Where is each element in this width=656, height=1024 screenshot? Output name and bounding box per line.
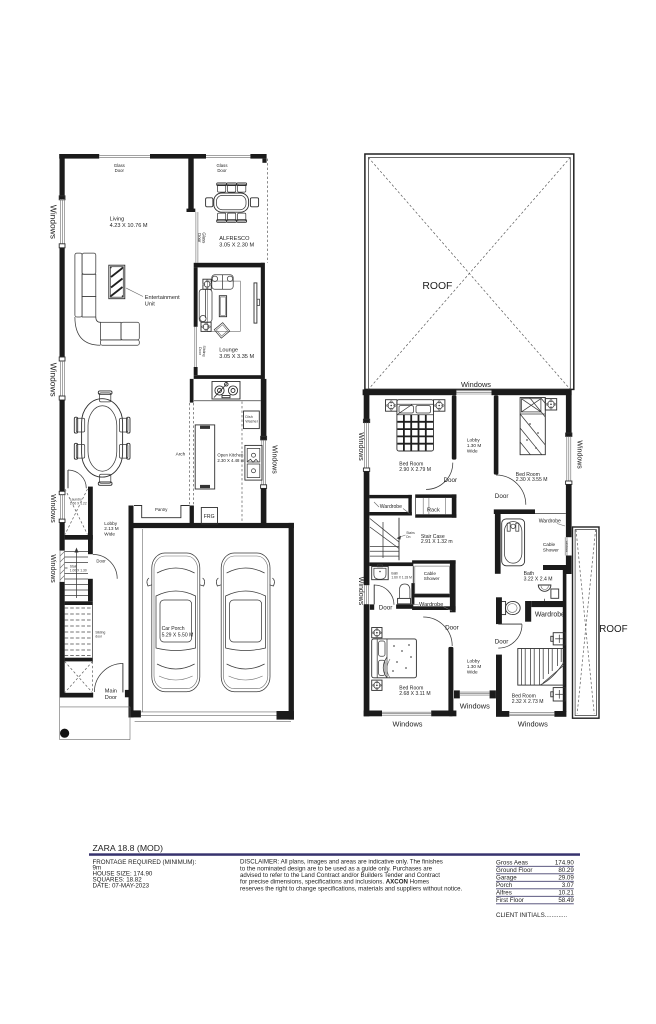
svg-text:Windows: Windows — [518, 719, 548, 728]
svg-text:2.30 X 3.55 M: 2.30 X 3.55 M — [516, 477, 548, 483]
svg-text:3.05 X 2.30 M: 3.05 X 2.30 M — [219, 243, 254, 249]
svg-text:Windows: Windows — [357, 432, 364, 461]
svg-text:ALFRESCO: ALFRESCO — [219, 236, 250, 242]
svg-text:3.07: 3.07 — [562, 882, 575, 889]
svg-text:Door: Door — [379, 605, 393, 612]
svg-text:Alfres: Alfres — [496, 889, 512, 896]
svg-text:2.30 X 4.48 m: 2.30 X 4.48 m — [217, 458, 244, 463]
svg-text:ZARA 18.8 (MOD): ZARA 18.8 (MOD) — [93, 843, 164, 853]
svg-text:2.68 X 3.11 M: 2.68 X 3.11 M — [399, 691, 430, 697]
svg-text:door: door — [95, 634, 103, 638]
svg-text:80.29: 80.29 — [558, 867, 574, 874]
svg-text:Wardrobe: Wardrobe — [380, 504, 402, 510]
svg-text:FRG: FRG — [204, 514, 215, 520]
svg-text:Shower: Shower — [424, 576, 440, 581]
svg-text:reserves the right to change s: reserves the right to change specificati… — [240, 885, 462, 892]
svg-text:Door: Door — [96, 558, 106, 563]
svg-text:Lounge: Lounge — [219, 347, 238, 353]
svg-text:Windows: Windows — [576, 440, 583, 469]
svg-text:Arch: Arch — [176, 451, 186, 456]
svg-text:Windows: Windows — [271, 445, 278, 474]
svg-text:1.60 X 1.22: 1.60 X 1.22 — [70, 501, 87, 505]
svg-text:FRONTAGE REQUIRED (MINIMUM):: FRONTAGE REQUIRED (MINIMUM): — [93, 859, 197, 866]
svg-text:Car Porch: Car Porch — [162, 626, 185, 632]
svg-text:Windows: Windows — [357, 577, 364, 606]
svg-text:Windows: Windows — [49, 554, 56, 583]
svg-text:DATE: 07-MAY-2023: DATE: 07-MAY-2023 — [93, 882, 150, 889]
svg-text:Unit: Unit — [145, 301, 155, 307]
svg-text:Entertainment: Entertainment — [145, 295, 180, 301]
svg-text:Washer: Washer — [245, 419, 258, 423]
svg-text:174.90: 174.90 — [555, 859, 574, 866]
svg-text:Wide: Wide — [104, 532, 115, 537]
svg-text:Door: Door — [217, 168, 227, 173]
svg-text:Windows: Windows — [460, 701, 490, 710]
svg-text:2.91 X 1.32 m: 2.91 X 1.32 m — [421, 539, 453, 545]
svg-text:1.00 X 1.30: 1.00 X 1.30 — [70, 569, 87, 573]
svg-text:SlidingDoor: SlidingDoor — [198, 345, 206, 356]
svg-text:Windows: Windows — [49, 494, 56, 523]
svg-text:Wardrobe: Wardrobe — [419, 602, 443, 608]
svg-text:Main: Main — [105, 689, 117, 695]
svg-text:GlassDoor: GlassDoor — [197, 232, 207, 243]
svg-text:4.23 X 10.76 M: 4.23 X 10.76 M — [110, 223, 148, 229]
svg-text:Pantry: Pantry — [155, 507, 168, 512]
svg-text:Cable: Cable — [543, 542, 556, 547]
svg-text:Dish: Dish — [245, 415, 252, 419]
svg-text:Lobby: Lobby — [467, 659, 480, 664]
svg-text:Lobby: Lobby — [467, 438, 480, 443]
svg-text:First Floor: First Floor — [496, 897, 524, 904]
svg-text:Dn: Dn — [406, 535, 410, 539]
svg-text:Wardrobe: Wardrobe — [535, 612, 565, 619]
svg-text:ROOF: ROOF — [422, 281, 452, 292]
svg-text:Rack: Rack — [427, 507, 440, 513]
svg-text:Porch: Porch — [496, 882, 513, 889]
svg-text:Windows: Windows — [49, 363, 59, 397]
svg-text:Cable: Cable — [424, 571, 437, 576]
svg-text:windows: windows — [565, 541, 569, 553]
svg-text:29.09: 29.09 — [558, 874, 574, 881]
svg-text:CLIENT INITIALS.............: CLIENT INITIALS............. — [496, 912, 567, 919]
svg-text:Ground Floor: Ground Floor — [496, 867, 532, 874]
svg-text:Wide: Wide — [467, 449, 478, 454]
svg-text:5.29 X 5.50 M: 5.29 X 5.50 M — [162, 633, 194, 639]
svg-text:Wide: Wide — [467, 669, 478, 674]
svg-text:Windows: Windows — [461, 380, 491, 389]
svg-text:Garage: Garage — [496, 874, 517, 881]
svg-text:58.49: 58.49 — [558, 897, 574, 904]
svg-text:Lobby: Lobby — [104, 521, 117, 526]
svg-text:Shower: Shower — [543, 547, 559, 552]
svg-text:Door: Door — [495, 493, 509, 500]
svg-text:1.30 M: 1.30 M — [467, 664, 481, 669]
svg-text:Door: Door — [105, 695, 117, 701]
svg-text:2.90 X 2.79 M: 2.90 X 2.79 M — [399, 467, 431, 473]
svg-text:Door: Door — [495, 638, 509, 645]
svg-text:Door: Door — [444, 477, 458, 484]
svg-text:3.05 X 3.35 M: 3.05 X 3.35 M — [219, 354, 254, 360]
svg-text:Windows: Windows — [49, 205, 59, 239]
svg-text:3.22 X 2.4 M: 3.22 X 2.4 M — [524, 577, 553, 583]
svg-text:10.21: 10.21 — [558, 889, 574, 896]
svg-text:Door: Door — [445, 624, 459, 631]
svg-text:ROOF: ROOF — [599, 624, 627, 635]
svg-text:1.60 X 1.33 M: 1.60 X 1.33 M — [391, 576, 412, 580]
svg-text:Windows: Windows — [393, 719, 423, 728]
svg-text:2.13 M: 2.13 M — [104, 526, 118, 531]
svg-text:Door: Door — [115, 168, 125, 173]
svg-text:1.30 M: 1.30 M — [467, 443, 481, 448]
svg-text:Gross Aeas: Gross Aeas — [496, 859, 528, 866]
svg-text:Living: Living — [110, 217, 125, 223]
svg-text:2.32 X 2.73 M: 2.32 X 2.73 M — [512, 699, 544, 705]
